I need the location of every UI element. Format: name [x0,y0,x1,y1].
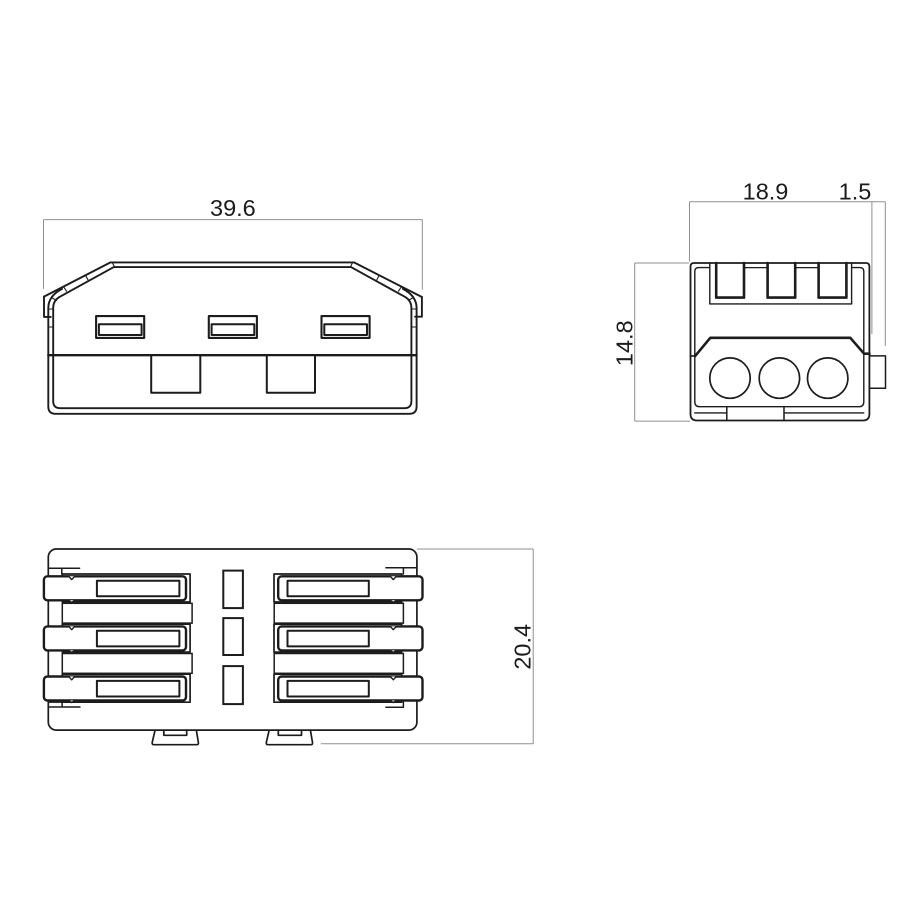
svg-text:18.9: 18.9 [743,179,789,205]
svg-text:39.6: 39.6 [210,195,256,221]
svg-text:1.5: 1.5 [839,179,872,205]
svg-text:20.4: 20.4 [510,624,536,670]
svg-text:14.8: 14.8 [611,320,637,366]
